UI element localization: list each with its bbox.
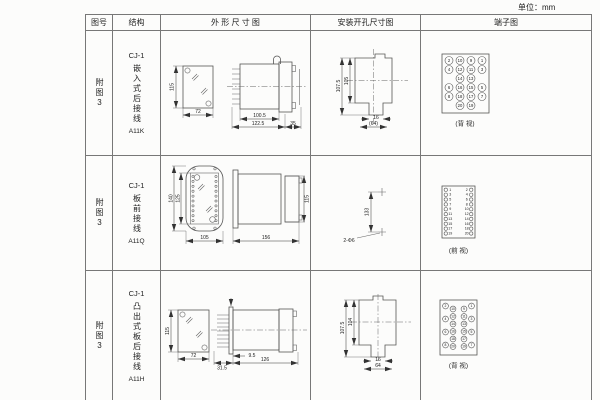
comb-depth-dim: 31.5	[217, 365, 227, 371]
structure-row3: CJ-1 凸出式板后接线 A11H	[113, 271, 161, 400]
view-label: (前 视)	[448, 246, 467, 255]
terminal-number: 13	[468, 76, 473, 81]
terminal-number: 1	[480, 58, 483, 63]
terminal-number: 5	[470, 330, 472, 334]
terminal-number: 14	[464, 217, 468, 221]
install-svg-a11h: 104 107.5 16 64	[311, 272, 420, 400]
terminal-15	[444, 222, 447, 225]
terminal-number: 17	[468, 94, 473, 99]
front-view: 115 72	[165, 310, 209, 362]
side-height-dim: 115	[305, 195, 311, 203]
terminal-number: 13	[462, 322, 466, 326]
side-view: 100.5 122.5 35	[227, 56, 307, 129]
terminal-12	[469, 212, 472, 215]
terminal-pins	[217, 315, 229, 347]
terminal-3	[444, 193, 447, 196]
terminal-number: 16	[457, 85, 462, 90]
terminal-number: 17	[462, 337, 466, 341]
terminal-number: 18	[464, 227, 468, 231]
outer-height-dim: 107.5	[336, 80, 342, 93]
terminal-number: 20	[457, 103, 462, 108]
terminal-drawing-row1: 2109141211314136161558181772019 (背 视)	[421, 31, 591, 156]
header-structure: 结构	[113, 15, 161, 31]
terminal-number: 11	[462, 314, 466, 318]
terminal-svg-a11k: 2109141211314136161558181772019 (背 视)	[422, 31, 591, 155]
fig-no-row1: 附图3	[86, 31, 113, 156]
screw-mark	[198, 184, 205, 191]
fig-no-text: 附图3	[95, 321, 103, 352]
terminal-13	[444, 217, 447, 220]
terminal-number: 18	[451, 337, 455, 341]
screw-mark	[206, 206, 213, 213]
series-label: CJ-1	[129, 289, 145, 298]
install-drawing-row3: 104 107.5 16 64	[311, 271, 421, 400]
structure-text: 嵌入式后接线	[133, 64, 141, 124]
depth-total-dim: 122.5	[252, 121, 265, 127]
terminal-number: 5	[449, 198, 451, 202]
side-view: 9.5 31.5 126	[211, 298, 307, 372]
tab-width-dim: 64	[375, 363, 381, 369]
terminal-drawing-row3: 2110912114314131615651817872019 (背 视)	[421, 271, 591, 400]
unit-label: 单位：mm	[518, 2, 555, 13]
hole-callout: 2-Φ6	[343, 238, 354, 244]
terminal-number: 7	[480, 94, 483, 99]
header-terminal-diagram: 端子图	[421, 15, 591, 31]
terminal-number: 2	[447, 58, 450, 63]
terminal-number: 6	[444, 330, 446, 334]
terminal-18	[469, 227, 472, 230]
header-fig-no: 图号	[86, 15, 113, 31]
cutout-height-dim: 104	[348, 317, 354, 326]
fig-no-row2: 附图3	[86, 156, 113, 271]
fig-no-text: 附图3	[95, 78, 103, 109]
terminal-number: 15	[468, 85, 473, 90]
model-label: A11Q	[128, 238, 144, 245]
outline-svg-a11h: 115 72 9.5 31.5	[161, 272, 310, 400]
header-install-dims: 安装开孔尺寸图	[311, 15, 421, 31]
terminal-svg-a11h: 2110912114314131615651817872019 (背 视)	[422, 272, 591, 400]
terminal-number: 20	[464, 232, 468, 236]
structure-row1: CJ-1 嵌入式后接线 A11K	[113, 31, 161, 156]
terminal-number: 9	[449, 207, 451, 211]
panel-cutout	[359, 296, 396, 357]
structure-text: 板前接线	[133, 194, 141, 234]
terminal-number: 16	[451, 329, 455, 333]
terminal-8	[469, 203, 472, 206]
outline-svg-a11q: 140 125 105 156 115	[161, 156, 310, 270]
hole-centers	[378, 188, 386, 236]
terminal-drawing-row2: 1234567891011121314151617181920 (前 视)	[421, 156, 591, 271]
body-depth-dim: 126	[261, 357, 270, 363]
view-label: (背 视)	[448, 360, 467, 369]
front-width-dim: 72	[195, 109, 201, 115]
terminal-number: 8	[465, 202, 467, 206]
front-width-dim: 105	[200, 235, 209, 241]
terminal-number: 14	[457, 76, 462, 81]
terminal-number: 10	[464, 207, 468, 211]
screw-mark	[186, 317, 193, 324]
front-height-dim: 115	[170, 83, 176, 91]
terminal-number: 18	[457, 94, 462, 99]
screw-mark	[192, 74, 199, 81]
spec-sheet-page: 单位：mm 图号 结构 外 形 尺 寸 图 安装开孔尺寸图 端子图 附图3 CJ…	[0, 0, 600, 400]
terminal-number: 5	[480, 85, 483, 90]
side-view: 156 115	[233, 170, 310, 244]
terminal-number: 6	[447, 85, 450, 90]
model-label: A11K	[129, 128, 144, 135]
fig-no-text: 附图3	[95, 198, 103, 229]
terminal-number: 3	[480, 67, 483, 72]
terminal-19	[444, 232, 447, 235]
install-drawing-row1: 105 107.5 16 (64)	[311, 31, 421, 156]
series-label: CJ-1	[129, 51, 145, 60]
terminal-1	[444, 188, 447, 191]
side-depth-dim: 156	[262, 235, 271, 241]
terminal-number: 9	[469, 58, 472, 63]
outline-drawing-row1: 115 72 100.5 122.5	[161, 31, 311, 156]
view-label: (背 视)	[455, 119, 474, 128]
terminal-16	[469, 222, 472, 225]
terminal-circles: 2109141211314136161558181772019	[445, 57, 486, 110]
front-inner-height-dim: 125	[176, 194, 182, 203]
front-view: 140 125 105	[169, 166, 224, 244]
terminal-number: 16	[464, 222, 468, 226]
model-label: A11H	[129, 376, 145, 383]
terminal-dots	[192, 175, 217, 221]
outline-drawing-row2: 140 125 105 156 115	[161, 156, 311, 271]
screw-mark	[196, 331, 203, 338]
terminal-number: 19	[448, 232, 452, 236]
terminal-number: 1	[470, 304, 472, 308]
terminal-svg-a11q: 1234567891011121314151617181920 (前 视)	[422, 156, 591, 270]
terminal-2	[469, 188, 472, 191]
cutout-height-dim: 105	[344, 77, 350, 86]
spec-table: 图号 结构 外 形 尺 寸 图 安装开孔尺寸图 端子图 附图3 CJ-1 嵌入式…	[85, 14, 592, 400]
terminal-number: 3	[449, 193, 451, 197]
outline-svg-a11k: 115 72 100.5 122.5	[161, 31, 310, 155]
terminal-number: 12	[464, 212, 468, 216]
terminal-number: 11	[448, 212, 452, 216]
install-svg-a11q: 133 2-Φ6	[311, 156, 420, 270]
terminal-number: 11	[468, 67, 473, 72]
terminal-10	[469, 208, 472, 211]
terminal-number: 6	[465, 198, 467, 202]
flange-depth-dim: 35	[290, 121, 296, 127]
terminal-number: 19	[462, 344, 466, 348]
install-drawing-row2: 133 2-Φ6	[311, 156, 421, 271]
terminal-number: 3	[470, 317, 472, 321]
terminal-number: 8	[444, 343, 446, 347]
outline-drawing-row3: 115 72 9.5 31.5	[161, 271, 311, 400]
terminal-number: 13	[448, 217, 452, 221]
structure-text: 凸出式板后接线	[133, 302, 141, 372]
depth-body-dim: 100.5	[253, 113, 266, 119]
terminal-number: 10	[451, 307, 455, 311]
terminal-number: 17	[448, 227, 452, 231]
terminal-number: 15	[448, 222, 452, 226]
header-outline-dims: 外 形 尺 寸 图	[161, 15, 311, 31]
terminal-11	[444, 212, 447, 215]
lift-hook	[274, 56, 281, 64]
terminal-circles: 1234567891011121314151617181920	[444, 188, 473, 236]
series-label: CJ-1	[129, 181, 145, 190]
terminal-number: 12	[451, 314, 455, 318]
front-view: 115 72	[170, 66, 214, 118]
hole-span-dim: 133	[365, 208, 371, 217]
terminal-6	[469, 198, 472, 201]
terminal-number: 7	[449, 202, 451, 206]
front-width-dim: 72	[191, 353, 197, 359]
terminal-number: 12	[457, 67, 462, 72]
outer-height-dim: 107.5	[340, 321, 346, 334]
terminal-number: 15	[462, 329, 466, 333]
terminal-number: 8	[447, 94, 450, 99]
terminal-14	[469, 217, 472, 220]
terminal-number: 9	[463, 307, 465, 311]
terminal-number: 20	[451, 344, 455, 348]
terminal-circles: 2110912114314131615651817872019	[442, 303, 474, 349]
terminal-4	[469, 193, 472, 196]
front-outer-height-dim: 140	[169, 194, 175, 203]
terminal-number: 7	[470, 343, 472, 347]
terminal-number: 14	[451, 322, 455, 326]
terminal-number: 2	[444, 304, 446, 308]
terminal-5	[444, 198, 447, 201]
install-svg-a11k: 105 107.5 16 (64)	[311, 31, 420, 155]
terminal-number: 10	[457, 58, 462, 63]
terminal-20	[469, 232, 472, 235]
terminal-number: 1	[449, 188, 451, 192]
terminal-9	[444, 208, 447, 211]
terminal-7	[444, 203, 447, 206]
structure-row2: CJ-1 板前接线 A11Q	[113, 156, 161, 271]
terminal-number: 4	[465, 193, 467, 197]
fig-no-row3: 附图3	[86, 271, 113, 400]
terminal-number: 2	[465, 188, 467, 192]
terminal-number: 4	[444, 317, 446, 321]
plate-offset-dim: 9.5	[249, 353, 256, 359]
front-height-dim: 115	[165, 326, 171, 334]
screw-mark	[201, 88, 208, 95]
terminal-17	[444, 227, 447, 230]
terminal-number: 19	[468, 103, 473, 108]
terminal-number: 4	[447, 67, 450, 72]
tab-width-dim: (64)	[369, 121, 378, 127]
